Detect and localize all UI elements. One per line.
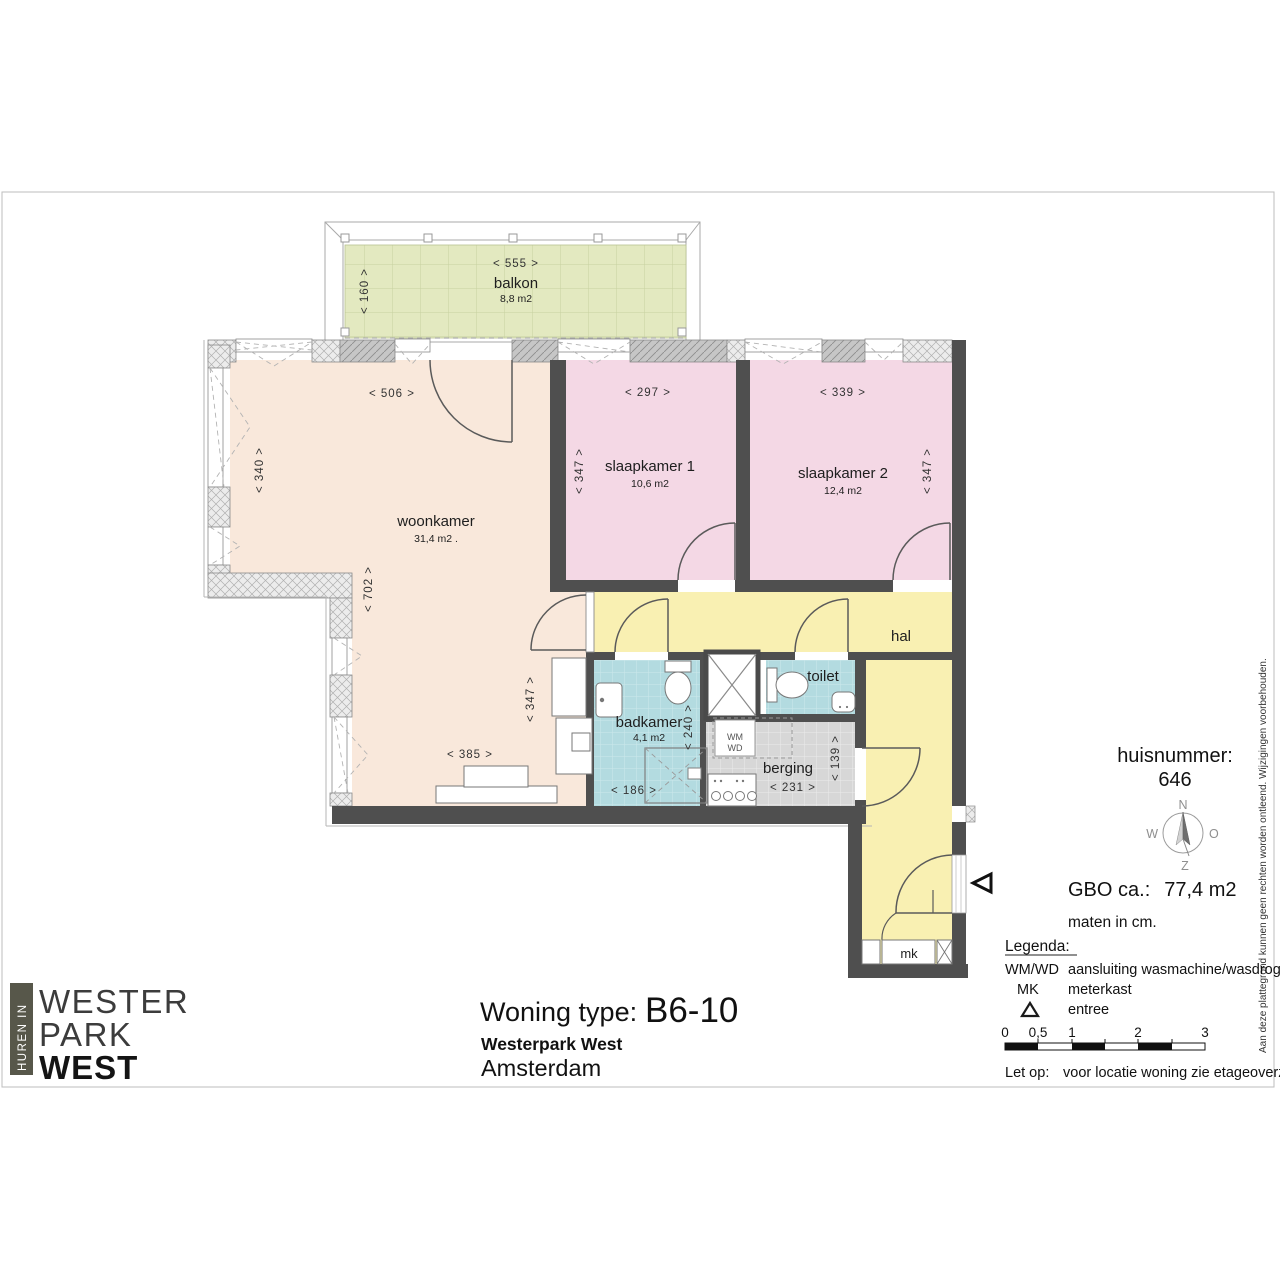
project-name: Westerpark West [481, 1034, 623, 1054]
floorplan-page: Aan deze plattegrond kunnen geen rechten… [0, 0, 1280, 1280]
area-woonkamer: 31,4 m2 . [414, 533, 458, 545]
legend-desc-mk: meterkast [1068, 982, 1132, 998]
scale-bar: 0 0,5 1 2 3 [1001, 1025, 1209, 1050]
kitchen-counter [552, 658, 586, 716]
scale-1: 1 [1068, 1025, 1076, 1040]
label-berging: berging [763, 760, 813, 777]
label-hal: hal [891, 628, 911, 645]
entree-arrow-icon [973, 874, 991, 892]
logo: HUREN IN WESTER PARK WEST [10, 983, 189, 1086]
area-slaapkamer1: 10,6 m2 [631, 478, 669, 490]
logo-line1: WESTER [39, 983, 189, 1020]
dim-woonkamer-385: < 385 > [447, 749, 493, 761]
wall-slaapkamer1-slaapkamer2 [736, 360, 750, 580]
note-label: Let op: [1005, 1065, 1049, 1081]
kitchen-appliance [572, 733, 590, 751]
legend-symbol-wmwd: WM/WD [1005, 962, 1059, 978]
scale-05: 0,5 [1029, 1025, 1048, 1040]
wall-woonkamer-slaapkamer1 [550, 360, 566, 592]
compass-z: Z [1181, 859, 1189, 873]
window [558, 339, 630, 352]
label-wm: WM [727, 732, 743, 742]
scale-3: 3 [1201, 1025, 1209, 1040]
shaft-small [937, 940, 952, 964]
legend-symbol-mk: MK [1017, 982, 1039, 998]
window [865, 339, 903, 352]
window [332, 638, 347, 675]
wc-bowl [776, 672, 808, 698]
triangle-up-icon [1022, 1003, 1038, 1016]
shaft [706, 652, 758, 718]
label-slaapkamer2: slaapkamer 2 [798, 465, 888, 482]
compass-icon: N O Z W [1146, 798, 1219, 873]
area-slaapkamer2: 12,4 m2 [824, 485, 862, 497]
cupboard [862, 940, 880, 964]
area-badkamer: 4,1 m2 [633, 732, 665, 744]
dim-berging-depth: < 139 > [830, 735, 842, 781]
sideboard [436, 786, 557, 803]
disclaimer-vertical: Aan deze plattegrond kunnen geen rechten… [1258, 658, 1269, 1053]
scale-0: 0 [1001, 1025, 1009, 1040]
label-toilet: toilet [807, 668, 840, 685]
huisnummer-label: huisnummer: [1117, 745, 1233, 767]
maten-note: maten in cm. [1068, 914, 1157, 931]
title-block: Woning type: B6-10 Westerpark West Amste… [480, 991, 738, 1081]
logo-line3: WEST [39, 1049, 138, 1086]
label-wd: WD [728, 743, 743, 753]
scale-2: 2 [1134, 1025, 1142, 1040]
dim-slaapkamer1-depth: < 347 > [574, 448, 586, 494]
dim-slaapkamer2-width: < 339 > [820, 387, 866, 399]
sideboard [464, 766, 528, 787]
label-badkamer: badkamer [616, 714, 683, 731]
dim-badkamer-width: < 186 > [611, 785, 657, 797]
logo-line2: PARK [39, 1016, 132, 1053]
logo-vertical-text: HUREN IN [17, 1003, 29, 1071]
gbo-row: GBO ca.:77,4 m2 [1068, 879, 1237, 901]
legend-desc-entree: entree [1068, 1002, 1109, 1018]
compass-n: N [1178, 798, 1187, 812]
dim-balkon-depth: < 160 > [359, 268, 371, 314]
info-panel: huisnummer: 646 N O Z W GBO ca.:77,4 m2 … [1001, 745, 1280, 1081]
woning-type-label: Woning type: [480, 997, 637, 1027]
wc-bowl [665, 672, 691, 704]
dim-woonkamer-340: < 340 > [254, 447, 266, 493]
huisnummer-value: 646 [1158, 769, 1191, 791]
legend-title: Legenda: [1005, 938, 1070, 955]
stove [708, 774, 757, 806]
wc-tank [665, 661, 691, 672]
dim-slaapkamer1-width: < 297 > [625, 387, 671, 399]
dim-berging-width: < 231 > [770, 782, 816, 794]
compass-w: W [1146, 827, 1158, 841]
legend-desc-wmwd: aansluiting wasmachine/wasdroger [1068, 962, 1280, 978]
note-text: voor locatie woning zie etageoverzicht. [1063, 1065, 1280, 1081]
dim-woonkamer-702: < 702 > [363, 566, 375, 612]
legend-items: WM/WD aansluiting wasmachine/wasdroger M… [1005, 962, 1280, 1018]
window [208, 527, 223, 565]
label-slaapkamer1: slaapkamer 1 [605, 458, 695, 475]
label-woonkamer: woonkamer [396, 513, 475, 530]
compass-o: O [1209, 827, 1219, 841]
dim-woonkamer-width: < 506 > [369, 388, 415, 400]
window [208, 368, 223, 487]
dim-woonkamer-347: < 347 > [525, 676, 537, 722]
hand-basin [832, 692, 855, 712]
dim-slaapkamer2-depth: < 347 > [922, 448, 934, 494]
label-balkon: balkon [494, 275, 538, 292]
window [236, 339, 312, 352]
city-name: Amsterdam [481, 1055, 601, 1081]
wall-stub [966, 806, 975, 822]
doorway-woonkamer-hal [586, 592, 594, 652]
dim-badkamer-depth: < 240 > [683, 704, 695, 750]
dim-balkon-width: < 555 > [493, 258, 539, 270]
woning-type-code: B6-10 [645, 991, 738, 1030]
window [332, 717, 347, 793]
label-mk: mk [900, 946, 918, 961]
area-balkon: 8,8 m2 [500, 293, 532, 305]
